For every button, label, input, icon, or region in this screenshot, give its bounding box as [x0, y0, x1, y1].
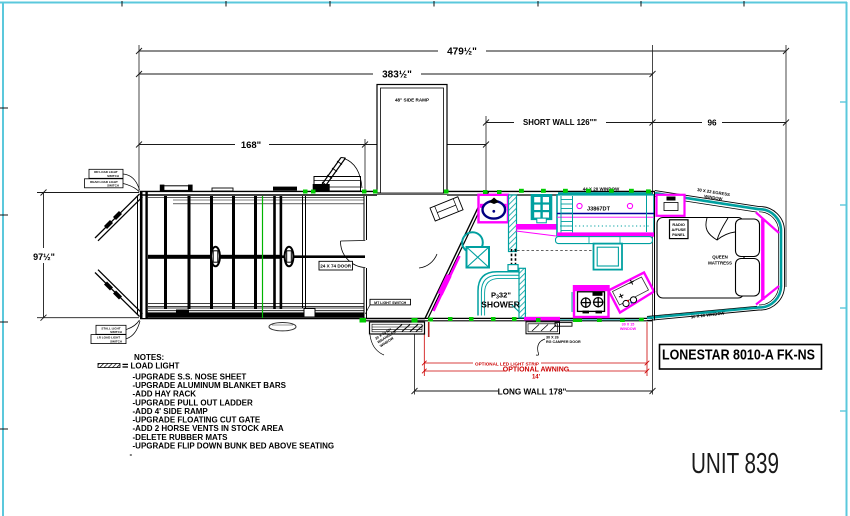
svg-text:SWITCH: SWITCH	[107, 174, 119, 178]
svg-text:-UPGRADE FLIP DOWN BUNK BED AB: -UPGRADE FLIP DOWN BUNK BED ABOVE SEATIN…	[133, 442, 335, 451]
svg-text:479½": 479½"	[447, 47, 477, 58]
svg-text:48" SIDE RAMP: 48" SIDE RAMP	[395, 98, 429, 103]
svg-text:30 X 15: 30 X 15	[622, 323, 635, 327]
svg-text:97½": 97½"	[33, 252, 55, 262]
svg-text:-ADD 4' SIDE RAMP: -ADD 4' SIDE RAMP	[133, 407, 209, 416]
svg-text:-UPGRADE S.S. NOSE SHEET: -UPGRADE S.S. NOSE SHEET	[133, 372, 247, 381]
svg-text:-ADD 2 HORSE VENTS IN STOCK AR: -ADD 2 HORSE VENTS IN STOCK AREA	[133, 424, 284, 433]
svg-text:MATTRESS: MATTRESS	[708, 261, 732, 266]
svg-text:NOTES:: NOTES:	[134, 353, 164, 362]
svg-text:QUEEN: QUEEN	[712, 255, 728, 260]
svg-text:-: -	[130, 450, 133, 459]
svg-text:-ADD HAY RACK: -ADD HAY RACK	[133, 390, 197, 399]
svg-text:SWITCH: SWITCH	[110, 339, 122, 343]
svg-text:OPTIONAL AWNING: OPTIONAL AWNING	[503, 367, 570, 374]
svg-text:168": 168"	[241, 140, 261, 151]
svg-text:383½": 383½"	[382, 70, 412, 81]
svg-text:LONG WALL 178": LONG WALL 178"	[498, 388, 567, 397]
svg-text:LONESTAR 8010-A FK-NS: LONESTAR 8010-A FK-NS	[662, 348, 815, 364]
svg-text:SHOWER: SHOWER	[481, 300, 520, 310]
svg-text:SWITCH: SWITCH	[107, 184, 119, 188]
svg-text:SWITCH: SWITCH	[110, 330, 122, 334]
svg-text:RG CAMPER DOOR: RG CAMPER DOOR	[546, 340, 581, 344]
svg-text:UNIT 839: UNIT 839	[691, 448, 779, 480]
svg-text:SHORT WALL 126"": SHORT WALL 126""	[523, 118, 597, 127]
svg-text:24 X 74 DOOR: 24 X 74 DOOR	[320, 264, 352, 269]
svg-text:LOAD LIGHT: LOAD LIGHT	[131, 362, 180, 371]
svg-text:96: 96	[707, 119, 717, 128]
svg-text:14': 14'	[532, 375, 541, 381]
svg-text:30 X 26: 30 X 26	[546, 336, 559, 340]
svg-text:PANEL: PANEL	[672, 232, 686, 237]
svg-text:WINDOW: WINDOW	[620, 327, 637, 331]
svg-text:MT LIGHT SWITCH: MT LIGHT SWITCH	[374, 301, 407, 305]
svg-text:J3867DT: J3867DT	[587, 207, 611, 213]
